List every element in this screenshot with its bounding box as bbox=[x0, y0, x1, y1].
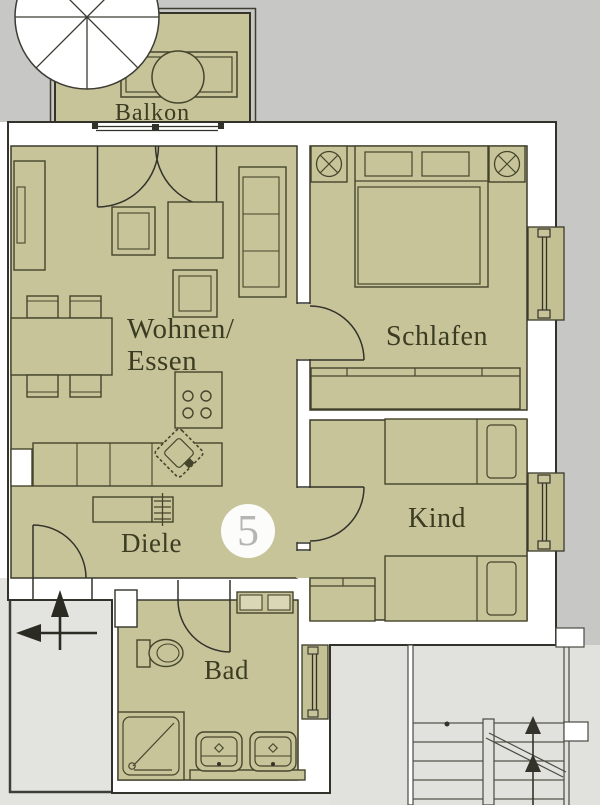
wardrobe-icon bbox=[311, 368, 520, 409]
nightstand-icon bbox=[489, 146, 525, 182]
window-kind-icon bbox=[528, 473, 564, 551]
room-label-wohnen-essen: Wohnen/Essen bbox=[127, 313, 234, 377]
armchair-icon bbox=[112, 207, 155, 255]
chair-icon bbox=[70, 296, 101, 318]
window-schlafen-icon bbox=[528, 227, 564, 320]
outside-walkway bbox=[0, 600, 112, 805]
pillow-icon bbox=[422, 152, 469, 176]
room-label-kind: Kind bbox=[408, 503, 466, 535]
bathroom-cabinet-icon bbox=[237, 592, 293, 613]
outside-walkway-bottom bbox=[112, 793, 330, 805]
chair-icon bbox=[70, 375, 101, 397]
room-label-balkon: Balkon bbox=[55, 100, 250, 127]
burner-icon bbox=[201, 391, 211, 401]
stair-stringer bbox=[483, 719, 494, 805]
outside-right bbox=[556, 122, 600, 645]
stove-counter bbox=[175, 372, 222, 428]
washbasin-icon bbox=[250, 732, 296, 771]
stair-wall bbox=[408, 645, 413, 805]
furniture-diele bbox=[93, 493, 173, 526]
armchair-icon bbox=[173, 270, 217, 317]
balcony-table-icon bbox=[152, 51, 204, 103]
stairwell-floor bbox=[330, 645, 600, 805]
single-bed-icon bbox=[385, 419, 527, 484]
nightstand-icon bbox=[311, 146, 347, 182]
toilet-icon bbox=[137, 640, 183, 668]
appliance-icon bbox=[11, 449, 32, 486]
stairwell-window bbox=[564, 722, 588, 741]
pillow-icon bbox=[487, 562, 516, 615]
dining-table-icon bbox=[11, 318, 112, 375]
room-label-diele: Diele bbox=[121, 528, 182, 559]
room-label-wohnen-line1: Wohnen/ bbox=[127, 313, 234, 345]
burner-icon bbox=[183, 408, 193, 418]
window-bad-icon bbox=[302, 645, 328, 719]
radiator-icon bbox=[152, 493, 173, 526]
chair-icon bbox=[27, 375, 58, 397]
burner-icon bbox=[183, 391, 193, 401]
pillow-icon bbox=[365, 152, 412, 176]
sideboard-icon bbox=[93, 497, 152, 522]
single-bed-icon bbox=[385, 556, 527, 621]
stairwell-window bbox=[556, 628, 584, 647]
room-label-schlafen: Schlafen bbox=[386, 321, 488, 353]
shower-icon bbox=[118, 712, 184, 780]
double-bed-icon bbox=[355, 146, 488, 287]
sofa-icon bbox=[239, 167, 286, 297]
shelf-cabinet-icon bbox=[14, 161, 45, 270]
opening-kind bbox=[296, 488, 311, 542]
burner-icon bbox=[201, 408, 211, 418]
coffee-table-icon bbox=[168, 202, 223, 258]
unit-number-badge: 5 bbox=[221, 504, 275, 558]
room-label-bad: Bad bbox=[204, 655, 249, 686]
chair-icon bbox=[27, 296, 58, 318]
pillow-icon bbox=[487, 425, 516, 478]
washbasin-icon bbox=[196, 732, 242, 771]
desk-icon bbox=[310, 578, 375, 621]
shaft bbox=[115, 590, 137, 627]
opening-diele-kind bbox=[296, 551, 311, 578]
room-label-wohnen-line2: Essen bbox=[127, 345, 197, 377]
stair-post-dot bbox=[445, 722, 450, 727]
floor-plan: Balkon Wohnen/Essen Schlafen Kind Diele … bbox=[0, 0, 600, 805]
opening-schlafen bbox=[296, 304, 311, 359]
unit-number: 5 bbox=[237, 509, 259, 553]
